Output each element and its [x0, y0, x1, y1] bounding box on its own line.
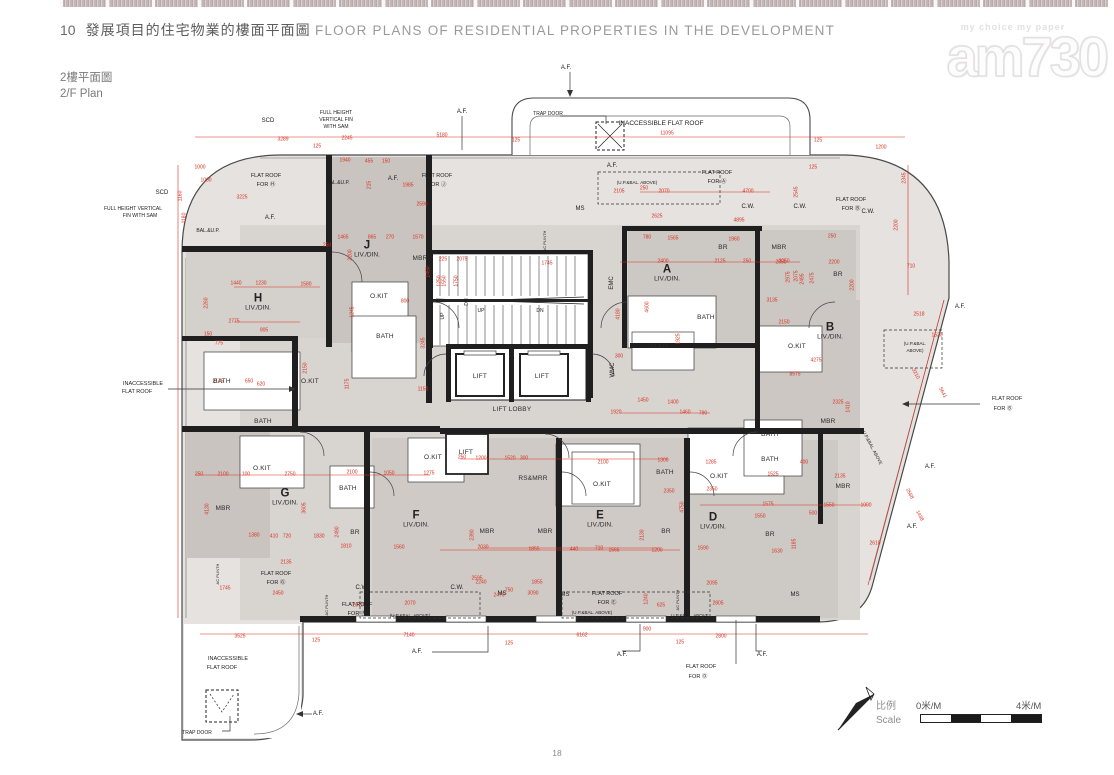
dimension-label: 1920: [610, 411, 621, 416]
dimension-label: 125: [676, 641, 684, 646]
plan-annotation: (U.P.&BAL.: [904, 341, 926, 347]
dimension-label: 1200: [875, 146, 886, 151]
dimension-label: 3225: [236, 196, 247, 201]
room-label: O.KIT: [788, 344, 806, 351]
plan-annotation: FOR Ⓓ: [689, 674, 708, 680]
dimension-label: 2595: [471, 577, 482, 582]
plan-annotation: FLAT ROOF: [342, 602, 372, 608]
dimension-label: 620: [257, 383, 265, 388]
dimension-label: 500: [809, 512, 817, 517]
dimension-label: 7140: [403, 634, 414, 639]
dimension-label: 1240: [645, 593, 650, 604]
room-label: RS&MRR: [518, 476, 547, 483]
plan-annotation: FLAT ROOF: [702, 170, 732, 176]
dimension-label: 2325: [832, 401, 843, 406]
scale-label-en: Scale: [876, 714, 901, 728]
dimension-label: 125: [312, 639, 320, 644]
dimension-label: 1380: [248, 534, 259, 539]
room-label: BR: [350, 530, 359, 537]
plan-annotation: DN: [464, 298, 470, 305]
dimension-label: 8575: [789, 373, 800, 378]
dimension-label: 2200: [349, 249, 354, 260]
room-label: LIFT: [459, 450, 473, 457]
plan-annotation: UP: [440, 313, 446, 320]
dimension-label: 400: [800, 461, 808, 466]
plan-annotation: FLAT ROOF: [592, 591, 622, 597]
unit-label-D: DLIV./DIN.: [700, 513, 726, 532]
dimension-label: 2105: [613, 190, 624, 195]
dimension-label: 1750: [455, 275, 460, 286]
plan-annotation: A.F.: [388, 176, 398, 182]
plan-annotation: FLAT ROOF: [251, 173, 281, 179]
dimension-label: 2350: [706, 488, 717, 493]
dimension-label: 2800: [715, 635, 726, 640]
dimension-label: 2775: [228, 320, 239, 325]
room-label: BATH: [761, 457, 779, 464]
dimension-label: 125: [313, 145, 321, 150]
dimension-label: 1520: [504, 457, 515, 462]
dimension-label: 1855: [528, 548, 539, 553]
dimension-label: 2050: [775, 261, 786, 266]
plan-annotation: AC PLINTH: [675, 590, 681, 611]
dimension-label: 1450: [637, 399, 648, 404]
plan-annotation: MS: [576, 206, 585, 212]
plan-annotation: WMC: [610, 363, 616, 378]
plan-annotation: FULL HEIGHT: [320, 110, 352, 116]
dimension-label: 1565: [667, 237, 678, 242]
dimension-label: 1565: [608, 549, 619, 554]
room-label: BATH: [697, 315, 715, 322]
dimension-label: 5641: [937, 387, 947, 399]
dimension-label: 2070: [658, 190, 669, 195]
room-label: O.KIT: [424, 455, 442, 462]
dimension-label: 2975: [787, 271, 792, 282]
dimension-label: 2805: [712, 602, 723, 607]
dimension-label: 270: [386, 236, 394, 241]
plan-annotation: TRAP DOOR: [182, 730, 212, 736]
dimension-label: 125: [512, 139, 520, 144]
plan-annotation: A.F.: [955, 304, 965, 310]
dimension-label: 2100: [217, 473, 228, 478]
dimension-label: 2545: [795, 186, 800, 197]
plan-annotation: ABOVE): [906, 348, 923, 354]
unit-label-J: JLIV./DIN.: [354, 241, 380, 260]
dimension-label: 1000: [860, 504, 871, 509]
room-label: LIFT: [535, 374, 549, 381]
plan-annotation: BAL.&U.P.: [196, 228, 219, 234]
dimension-label: 2070: [404, 602, 415, 607]
plan-annotation: UP: [478, 308, 485, 314]
dimension-label: 2345: [903, 172, 908, 183]
dimension-label: 3605: [303, 502, 308, 513]
dimension-label: 3090: [527, 592, 538, 597]
room-label: MBR: [537, 529, 552, 536]
dimension-label: 2495: [801, 273, 806, 284]
dimension-label: 3210: [910, 368, 920, 380]
plan-annotation: FLAT ROOF: [422, 173, 452, 179]
dimension-label: 1745: [541, 262, 552, 267]
dimension-label: 1285: [705, 461, 716, 466]
plan-annotation: PD: [654, 430, 662, 436]
scale-segment: [951, 715, 981, 722]
dimension-label: 2130: [641, 529, 646, 540]
dimension-label: 1925: [677, 333, 682, 344]
plan-annotation: FOR Ⓔ: [598, 600, 617, 606]
dimension-label: 2150: [304, 362, 309, 373]
dimension-label: 790: [699, 412, 707, 417]
dimension-label: 1570: [412, 236, 423, 241]
dimension-label: 1550: [754, 515, 765, 520]
room-label: BR: [718, 245, 727, 252]
dimension-label: 1460: [679, 411, 690, 416]
dimension-label: 3289: [277, 138, 288, 143]
dimension-label: 1180: [183, 213, 188, 224]
scale-start-value: 0米/M: [916, 698, 941, 712]
dimension-label: 2568: [904, 488, 914, 500]
room-label: O.KIT: [301, 379, 319, 386]
dimension-label: 1550: [443, 275, 448, 286]
dimension-label: 250: [640, 187, 648, 192]
dimension-label: 1590: [697, 547, 708, 552]
dimension-label: 250: [828, 235, 836, 240]
plan-annotation: FLAT ROOF: [207, 665, 237, 671]
plan-annotation: A.F.: [607, 163, 617, 169]
room-label: BATH: [761, 432, 779, 439]
dimension-label: 1410: [847, 401, 852, 412]
plan-annotation: A.F.: [617, 652, 627, 658]
room-label: MBR: [835, 484, 850, 491]
dimension-label: 4700: [742, 190, 753, 195]
plan-annotation: TRAP DOOR: [533, 111, 563, 117]
dimension-label: 4275: [810, 359, 821, 364]
dimension-label: 3525: [234, 635, 245, 640]
dimension-label: 215: [368, 181, 373, 189]
plan-annotation: A.F.: [757, 652, 767, 658]
dimension-label: 2125: [714, 260, 725, 265]
dimension-label: 1438: [914, 510, 924, 522]
dimension-label: 2350: [663, 490, 674, 495]
dimension-label: 1580: [300, 283, 311, 288]
dimension-label: 2518: [913, 313, 924, 318]
dimension-label: 2200: [828, 261, 839, 266]
plan-annotation: A.F.: [457, 109, 467, 115]
plan-annotation: C.W.: [862, 209, 875, 215]
dimension-label: 300: [615, 355, 623, 360]
dimension-label: 1575: [762, 503, 773, 508]
dimension-label: 1550: [823, 504, 834, 509]
dimension-label: 1520: [931, 334, 942, 339]
dimension-label: 125: [814, 139, 822, 144]
dimension-label: 100: [242, 473, 250, 478]
plan-annotation: U.P.&BAL. ABOVE: [671, 613, 708, 619]
dimension-label: 2590: [416, 203, 427, 208]
dimension-label: 1000: [200, 179, 211, 184]
plan-annotation: FOR Ⓕ: [348, 611, 367, 617]
scale-label-zh: 比例: [876, 700, 901, 714]
dimension-label: 440: [570, 548, 578, 553]
scale-segment: [921, 715, 951, 722]
dimension-label: 1560: [393, 546, 404, 551]
dimension-label: 2100: [346, 471, 357, 476]
dimension-label: 11095: [660, 132, 674, 137]
dimension-label: 2095: [706, 582, 717, 587]
unit-label-F: FLIV./DIN.: [403, 511, 429, 530]
room-label: BATH: [656, 470, 674, 477]
plan-annotation: INACCESSIBLE: [208, 656, 248, 662]
dimension-label: 4180: [617, 308, 622, 319]
plan-annotation: FOR Ⓑ: [994, 406, 1013, 412]
plan-annotation: FOR Ⓙ: [428, 182, 447, 188]
dimension-label: 2610: [869, 542, 880, 547]
dimension-label: 905: [260, 329, 268, 334]
plan-annotation: MS: [791, 592, 800, 598]
dimension-label: 1630: [771, 550, 782, 555]
plan-annotation: A.F.: [412, 649, 422, 655]
room-label: O.KIT: [370, 294, 388, 301]
dimension-label: 455: [365, 160, 373, 165]
dimension-label: 1440: [230, 282, 241, 287]
dimension-label: 1400: [667, 401, 678, 406]
plan-annotation: AC PLINTH: [324, 595, 330, 616]
dimension-label: 1300: [657, 459, 668, 464]
plan-annotation: A.F.: [907, 524, 917, 530]
plan-annotation: (U.P.&BAL. ABOVE): [617, 180, 657, 186]
dimension-label: 2450: [272, 592, 283, 597]
dimension-label: 1940: [339, 159, 350, 164]
plan-annotation: INACCESSIBLE FLAT ROOF: [618, 121, 703, 127]
dimension-label: 2200: [851, 279, 856, 290]
plan-annotation: C.W.: [742, 204, 755, 210]
dimension-label: 2390: [471, 529, 476, 540]
dimension-label: 1150: [418, 388, 429, 393]
room-label: BR: [661, 529, 670, 536]
room-label: O.KIT: [253, 466, 271, 473]
plan-annotation: (U.P.&BAL. ABOVE): [390, 613, 430, 619]
plan-annotation: C.W.: [451, 585, 464, 591]
dimension-label: 720: [283, 535, 291, 540]
dimension-label: 2135: [834, 475, 845, 480]
room-label: MBR: [412, 256, 427, 263]
dimension-label: 125: [809, 166, 817, 171]
dimension-label: 6162: [576, 634, 587, 639]
plan-annotation: FULL HEIGHT VERTICAL: [104, 206, 162, 212]
dimension-label: 2475: [811, 272, 816, 283]
room-label: MBR: [215, 506, 230, 513]
plan-annotation: FLAT ROOF: [836, 197, 866, 203]
plan-annotation: FOR Ⓐ: [708, 179, 727, 185]
dimension-label: 410: [270, 535, 278, 540]
page-number: 18: [0, 748, 1114, 758]
plan-annotation: SCD: [156, 190, 169, 196]
plan-annotation: MS: [498, 591, 507, 597]
plan-annotation: FIN WITH SAM: [123, 213, 157, 219]
room-label: MBR: [479, 529, 494, 536]
room-label: BATH: [213, 379, 231, 386]
dimension-label: 1745: [219, 587, 230, 592]
dimension-label: 2260: [205, 297, 210, 308]
dimension-label: 4895: [733, 219, 744, 224]
dimension-label: 2075: [456, 258, 467, 263]
room-label: BR: [833, 272, 842, 279]
room-label: MBR: [771, 245, 786, 252]
floor-plan-area: 3289125224551801251109512512001000100032…: [0, 0, 1114, 775]
dimension-label: 1830: [313, 535, 324, 540]
dimension-label: 625: [657, 604, 665, 609]
dimension-label: 4130: [206, 503, 211, 514]
dimension-label: 2030: [477, 546, 488, 551]
dimension-label: 1465: [337, 236, 348, 241]
dimension-label: 2245: [341, 137, 352, 142]
dimension-label: 2135: [280, 561, 291, 566]
plan-annotation: (U.P.&BAL. ABOVE): [572, 610, 612, 616]
dimension-label: 3245: [422, 337, 427, 348]
plan-annotation: WITH SAM: [324, 124, 349, 130]
dimension-label: 300: [520, 457, 528, 462]
room-label: MBR: [820, 419, 835, 426]
dimension-label: 250: [195, 473, 203, 478]
plan-annotation: A.F.: [313, 711, 323, 717]
plan-annotation: FLAT ROOF: [122, 389, 152, 395]
room-label: BR: [765, 532, 774, 539]
dimension-label: 1810: [340, 545, 351, 550]
room-label: BATH: [254, 419, 272, 426]
dimension-label: 2750: [284, 473, 295, 478]
unit-label-H: HLIV./DIN.: [245, 294, 271, 313]
scale-segment: [981, 715, 1011, 722]
dimension-label: 4600: [646, 301, 651, 312]
plan-annotation: BAL.&U.P.: [326, 180, 349, 186]
dimension-label: 1855: [531, 581, 542, 586]
scale-label: 比例 Scale: [876, 700, 901, 728]
dimension-label: 1050: [383, 472, 394, 477]
dimension-label: 150: [382, 160, 390, 165]
plan-annotation: FLAT ROOF: [686, 664, 716, 670]
dimension-label: 1200: [475, 457, 486, 462]
dimension-label: 1245: [351, 306, 356, 317]
dimension-label: 250: [458, 456, 466, 461]
dimension-label: 710: [595, 547, 603, 552]
dimension-label: 125: [505, 642, 513, 647]
dimension-label: 2100: [597, 461, 608, 466]
dimension-label: 1985: [402, 184, 413, 189]
dimension-label: 1200: [651, 549, 662, 554]
dimension-label: 1960: [728, 238, 739, 243]
dimension-label: 1000: [194, 166, 205, 171]
dimension-label: 4750: [681, 501, 686, 512]
plan-annotation: MS: [561, 592, 570, 598]
room-label: BATH: [339, 486, 357, 493]
dimension-label: 780: [643, 236, 651, 241]
dimension-label: 1175: [346, 379, 351, 390]
dimension-label: 1230: [255, 282, 266, 287]
plan-annotation: EMC: [609, 276, 615, 289]
dimension-label: 1450: [427, 266, 432, 277]
dimension-label: 1160: [179, 191, 184, 202]
dimension-label: 775: [215, 342, 223, 347]
dimension-label: 2625: [651, 215, 662, 220]
plan-annotation: U.P.&BAL. ABOVE: [861, 430, 884, 466]
room-label: BATH: [376, 334, 394, 341]
plan-annotation: AC PLINTH: [215, 564, 221, 585]
room-label: O.KIT: [710, 474, 728, 481]
dimension-label: 2490: [336, 526, 341, 537]
plan-annotation: FLAT ROOF: [261, 571, 291, 577]
dimension-label: 250: [323, 244, 331, 249]
plan-annotation: SCD: [262, 118, 275, 124]
dimension-label: 1185: [793, 539, 798, 550]
unit-label-G: GLIV./DIN.: [272, 489, 298, 508]
plan-annotation-layer: 3289125224551801251109512512001000100032…: [0, 0, 1114, 775]
room-label: O.KIT: [651, 344, 669, 351]
dimension-label: 1275: [423, 472, 434, 477]
dimension-label: 1525: [767, 473, 778, 478]
unit-label-A: ALIV./DIN.: [654, 265, 680, 284]
dimension-label: 150: [204, 333, 212, 338]
plan-annotation: A.F.: [265, 215, 275, 221]
plan-annotation: A.F.: [925, 464, 935, 470]
room-label: LIFT: [473, 374, 487, 381]
plan-annotation: FOR Ⓗ: [257, 182, 276, 188]
plan-annotation: VERTICAL FIN: [319, 117, 353, 123]
plan-annotation: INACCESSIBLE: [123, 381, 163, 387]
plan-annotation: FLAT ROOF: [992, 396, 1022, 402]
unit-label-B: BLIV./DIN.: [817, 323, 843, 342]
scale-segment: [1011, 715, 1041, 722]
dimension-label: 250: [743, 260, 751, 265]
dimension-label: 3135: [766, 299, 777, 304]
plan-annotation: A.F.: [561, 65, 571, 71]
dimension-label: 2200: [895, 219, 900, 230]
dimension-label: 5180: [436, 134, 447, 139]
scale-end-value: 4米/M: [1016, 698, 1041, 712]
plan-annotation: C.W.: [356, 585, 369, 591]
unit-label-E: ELIV./DIN.: [587, 511, 613, 530]
plan-annotation: DN: [536, 308, 543, 314]
dimension-label: 225: [439, 258, 447, 263]
room-label: LIFT LOBBY: [493, 407, 532, 414]
plan-annotation: C.W.: [794, 204, 807, 210]
scale-bar: [920, 714, 1042, 723]
dimension-label: 2150: [778, 321, 789, 326]
plan-annotation: AC PLINTH: [542, 231, 548, 252]
plan-annotation: FOR Ⓖ: [267, 580, 286, 586]
plan-annotation: FOR Ⓑ: [842, 206, 861, 212]
plan-annotation: UP: [589, 297, 595, 304]
room-label: O.KIT: [593, 482, 611, 489]
dimension-label: 800: [401, 300, 409, 305]
dimension-label: 900: [643, 628, 651, 633]
dimension-label: 650: [245, 380, 253, 385]
dimension-label: 710: [907, 265, 915, 270]
